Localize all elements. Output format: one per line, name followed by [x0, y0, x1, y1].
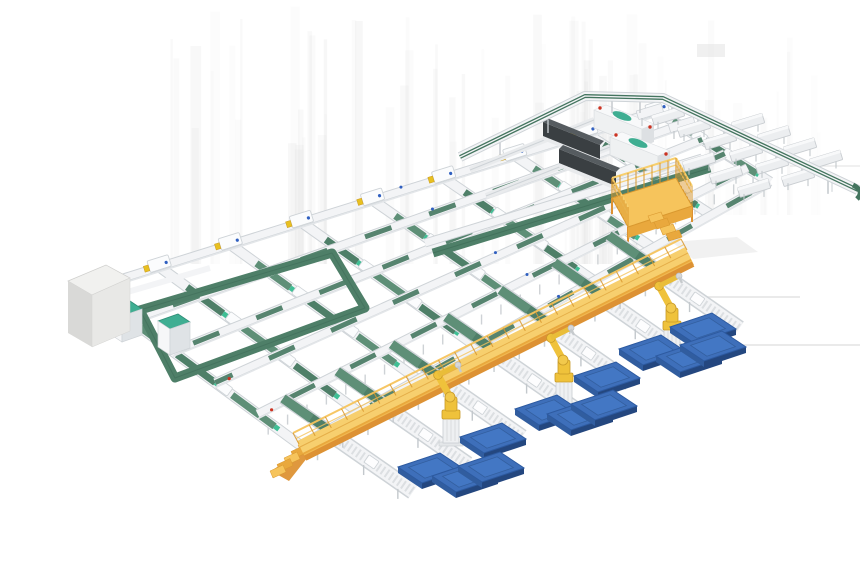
factory-render-canvas [0, 0, 860, 580]
factory-scene [0, 0, 860, 580]
